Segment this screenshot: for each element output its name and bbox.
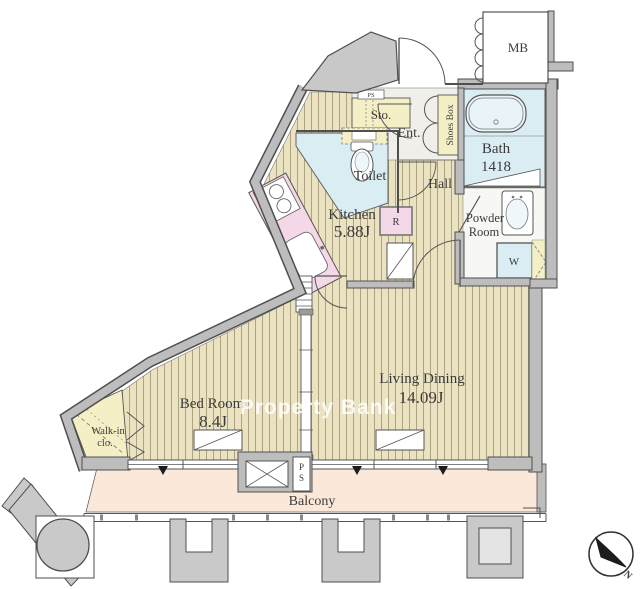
meter-box-label: MB xyxy=(508,40,529,55)
bedroom-cabinet xyxy=(194,430,242,450)
hatch-box xyxy=(246,461,288,487)
pipe-space-lower-label-1: P xyxy=(299,462,304,472)
hall-label: Hall xyxy=(428,177,452,192)
pentagon-column xyxy=(302,32,398,93)
pipe-space-lower-label-2: S xyxy=(299,473,304,483)
tall-cabinet xyxy=(387,243,413,279)
bath-label: Bath xyxy=(482,141,511,157)
living-dining-label: Living Dining xyxy=(379,371,465,387)
balcony-label: Balcony xyxy=(289,494,336,509)
living-window xyxy=(312,460,488,469)
structure-column-right-square xyxy=(467,508,540,578)
walk-in-closet-label-2: clo. xyxy=(97,438,112,449)
pipe-space-upper-label: PS xyxy=(367,92,375,99)
walk-in-closet-label-1: Walk-in xyxy=(91,426,125,437)
powder-yellow-strip xyxy=(532,240,545,282)
entrance-label: Ent. xyxy=(398,126,421,141)
compass: N xyxy=(589,532,635,582)
bath-size-label: 1418 xyxy=(481,159,511,175)
bed-room-size-label: 8.4J xyxy=(199,412,227,431)
powder-room-label-1: Powder xyxy=(466,211,505,225)
refrigerator-label: R xyxy=(392,217,399,228)
shoes-box-label: Shoes Box xyxy=(446,104,456,145)
washing-machine-label: W xyxy=(509,256,520,268)
bedroom-window xyxy=(128,460,238,469)
entrance-door xyxy=(399,38,445,84)
round-column xyxy=(37,519,89,571)
living-dining-size-label: 14.09J xyxy=(399,388,444,407)
watermark: Property Bank xyxy=(240,396,397,419)
kitchen-size-label: 5.88J xyxy=(334,222,371,241)
storage-label: Sto. xyxy=(371,107,392,122)
structure-column-mid-u xyxy=(322,519,380,582)
powder-room-label-2: Room xyxy=(469,225,500,239)
living-cabinet xyxy=(376,430,424,450)
floor-plan: MB Ent. Sto. PS Shoes Box Toilet Bath 14… xyxy=(0,0,640,589)
bed-room-label: Bed Room xyxy=(180,396,245,412)
toilet-label: Toilet xyxy=(354,169,387,184)
sliding-partition xyxy=(299,309,313,461)
structure-bottom-left xyxy=(2,478,94,586)
structure-column-left-u xyxy=(170,519,228,582)
kitchen-label: Kitchen xyxy=(328,207,376,223)
meter-box-doors xyxy=(475,18,483,82)
